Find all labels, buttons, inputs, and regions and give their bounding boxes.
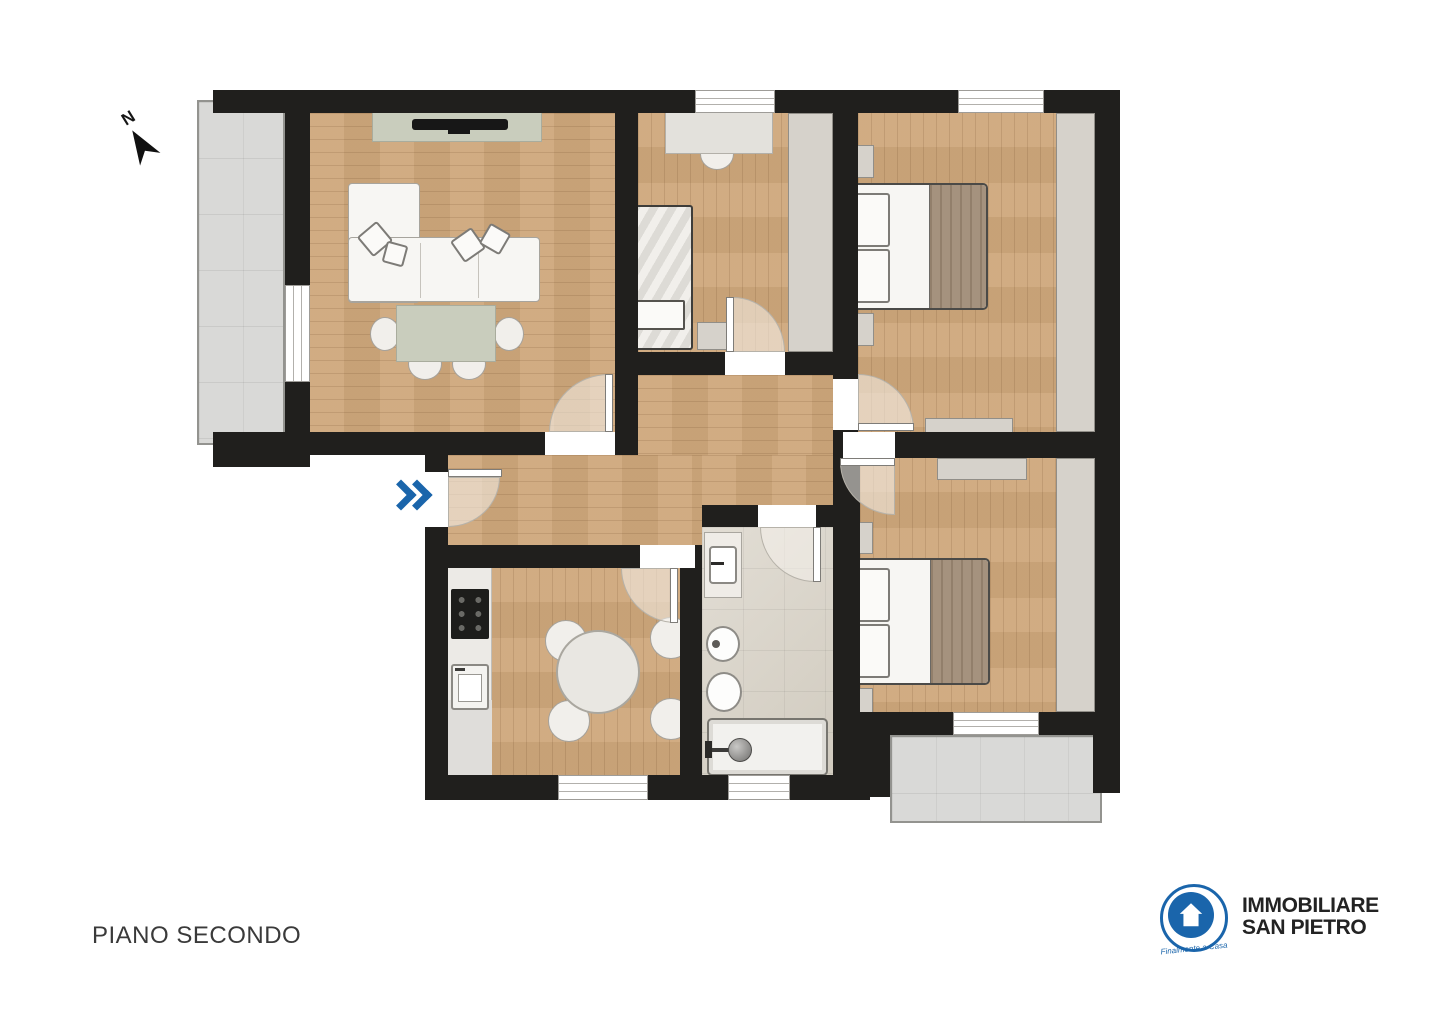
dresser: [937, 458, 1027, 480]
wall: [1095, 90, 1120, 735]
balcony-left: [197, 100, 285, 445]
logo-name-line2: SAN PIETRO: [1242, 917, 1379, 939]
tv-foot: [448, 130, 470, 134]
door-leaf: [858, 423, 914, 431]
vanity-faucet: [711, 562, 724, 565]
door-leaf: [726, 297, 734, 352]
logo-name: IMMOBILIARE SAN PIETRO: [1242, 895, 1379, 939]
vanity-sink: [709, 546, 737, 584]
sofa-cushion-line: [420, 243, 421, 298]
door-opening-living: [545, 432, 615, 455]
kitchen-faucet: [455, 668, 465, 671]
nightstand: [697, 322, 727, 350]
hallway-floor-right: [702, 455, 833, 505]
cooktop: [451, 589, 489, 639]
wardrobe-master-bedroom: [1056, 113, 1095, 432]
wall: [285, 90, 310, 455]
door-opening-bathroom: [758, 505, 816, 527]
wall: [1093, 735, 1120, 793]
balcony-bottom: [890, 735, 1102, 823]
wall: [680, 568, 702, 775]
door-leaf: [813, 527, 821, 582]
floor-plan: N PIANO SECONDO Finalmente a Casa IMMOBI…: [0, 0, 1440, 1018]
double-bed-master: [843, 183, 988, 310]
wall: [833, 458, 860, 775]
north-compass: N: [103, 93, 185, 179]
kitchen-counter-low: [448, 700, 492, 775]
window: [558, 775, 648, 800]
corridor-floor: [638, 375, 833, 455]
dining-table: [396, 305, 496, 362]
bidet-faucet: [712, 640, 720, 648]
window: [953, 712, 1039, 735]
logo-name-line1: IMMOBILIARE: [1242, 895, 1379, 917]
window: [728, 775, 790, 800]
dining-chair: [494, 317, 524, 351]
door-opening-master: [833, 379, 858, 430]
door-opening-small-bedroom: [725, 352, 785, 375]
north-arrow-icon: [116, 118, 167, 172]
tv-icon: [412, 119, 508, 130]
door-opening-entry: [425, 472, 448, 527]
window: [695, 90, 775, 113]
kitchen-round-table: [556, 630, 640, 714]
toilet: [706, 672, 742, 712]
bed-blanket: [930, 560, 988, 683]
wardrobe-second-bedroom: [1056, 458, 1095, 712]
wardrobe-small-bedroom: [788, 113, 833, 352]
shower-valve: [705, 741, 712, 758]
window: [958, 90, 1044, 113]
door-leaf: [840, 458, 895, 466]
door-leaf: [605, 374, 613, 432]
wall: [615, 90, 638, 455]
door-opening-kitchen: [640, 545, 695, 568]
bathtub: [707, 718, 828, 776]
shower-head: [728, 738, 752, 762]
wall: [845, 735, 890, 797]
wall: [213, 432, 310, 467]
door-leaf: [670, 568, 678, 623]
double-bed-second: [843, 558, 990, 685]
kitchen-sink-basin: [458, 674, 482, 702]
bed-blanket: [929, 185, 986, 308]
door-opening-second-bedroom: [843, 432, 895, 458]
desk: [665, 112, 773, 154]
door-leaf: [448, 469, 502, 477]
agency-logo: Finalmente a Casa IMMOBILIARE SAN PIETRO: [1158, 882, 1398, 972]
balcony-door-window: [285, 285, 310, 382]
floor-title: PIANO SECONDO: [92, 922, 301, 950]
